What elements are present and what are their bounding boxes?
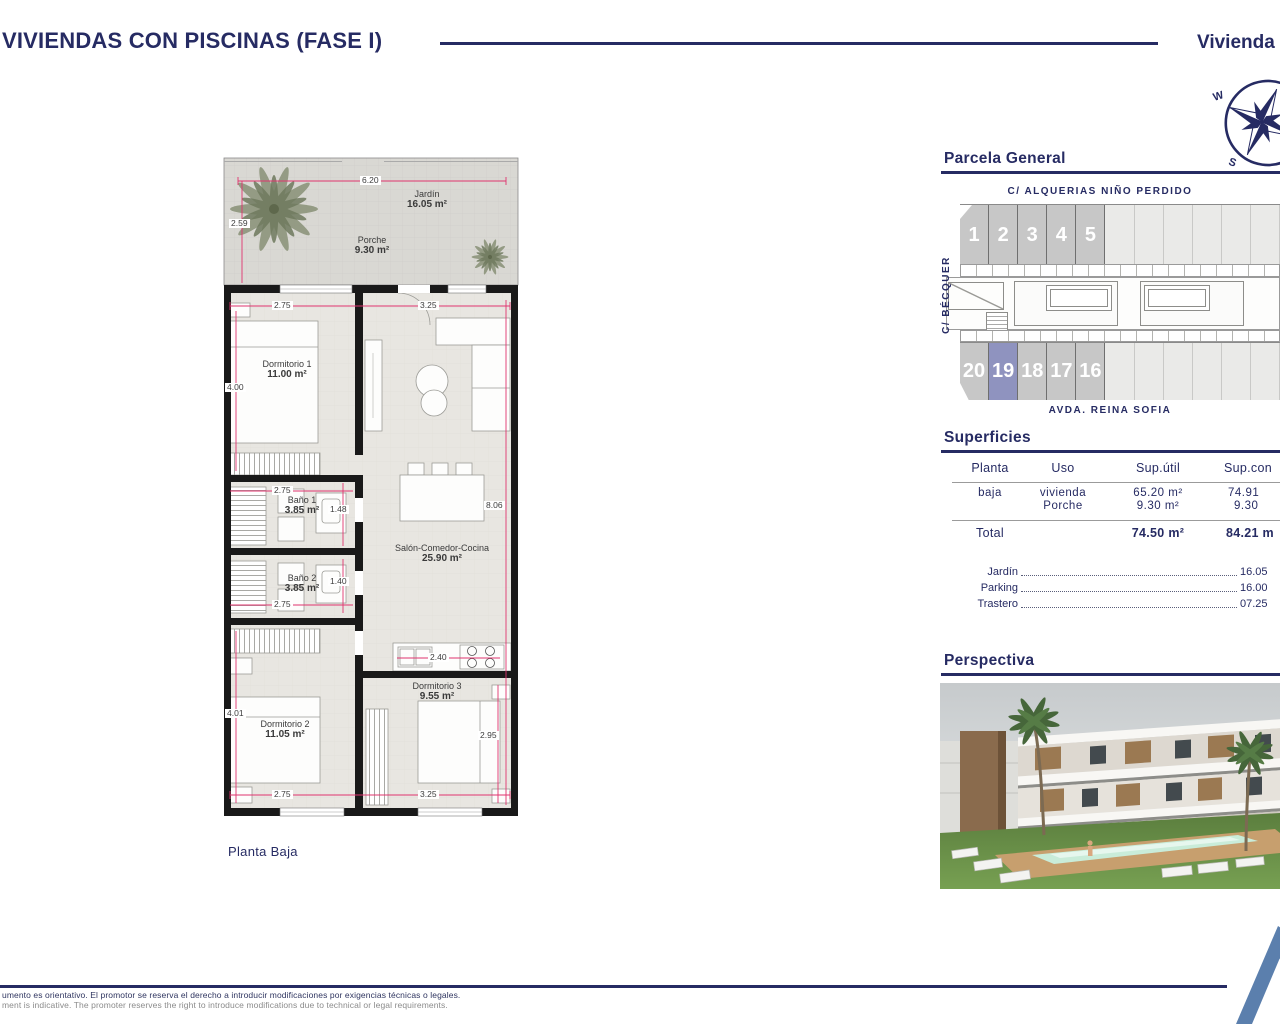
dotted-leader [1021,591,1237,592]
room-label-dormitorio3: Dormitorio 39.55 m² [372,681,502,703]
dim-terrace-height: 2.59 [229,219,250,228]
dim-terrace-width: 6.20 [360,176,381,185]
extras-row: Trastero 07.25 [940,594,1280,610]
section-title-parcela: Parcela General [944,150,1066,168]
perspective-rendering [940,683,1280,889]
unit-cell: 2 [989,205,1018,265]
dim-dorm1-width: 2.75 [272,301,293,310]
unit-cell: 20 [960,343,989,400]
table-cell: 9.30 [1234,500,1280,512]
unit-cell-empty [1135,343,1164,400]
table-cell: 9.30 m² [1118,500,1198,512]
unit-cell-empty [1105,343,1134,400]
dim-salon-height: 8.06 [484,501,505,510]
terrace-strip [960,264,1280,277]
table-header-sup-cons: Sup.con [1224,461,1280,475]
table-cell: baja [955,487,1025,499]
dim-bano2-width: 2.75 [272,600,293,609]
extras-label: Parking [940,582,1018,594]
unit-cell-empty [1251,343,1280,400]
room-label-dormitorio2: Dormitorio 211.05 m² [230,719,340,741]
unit-cell-empty [1193,205,1222,265]
section-title-superficies: Superficies [944,429,1031,447]
terrace-strip [960,330,1280,342]
unit-cell-empty [1135,205,1164,265]
extras-value: 16.05 [1240,566,1280,578]
disclaimer-en: ment is indicative. The promoter reserve… [2,1000,448,1010]
extras-row: Parking 16.00 [940,578,1280,594]
dim-bano1-height: 1.48 [328,505,349,514]
table-total-label: Total [955,526,1025,540]
unit-cell-highlighted: 19 [989,343,1018,400]
extras-value: 07.25 [1240,598,1280,610]
room-label-salon: Salón-Comedor-Cocina25.90 m² [372,543,512,565]
floor-label: Planta Baja [228,844,298,859]
table-header-uso: Uso [1028,461,1098,475]
unit-cell: 18 [1018,343,1047,400]
dim-salon-width: 3.25 [418,301,439,310]
room-label-jardin: Jardín16.05 m² [372,189,482,211]
unit-cell-empty [1251,205,1280,265]
street-label-top: C/ ALQUERIAS NIÑO PERDIDO [950,186,1250,197]
brand-logo [1228,924,1280,1024]
table-header-planta: Planta [955,461,1025,475]
unit-cell: 16 [1076,343,1105,400]
unit-cell: 1 [960,205,989,265]
section-rule [941,171,1280,174]
table-total-util: 74.50 m² [1118,526,1198,540]
street-label-left: C/ BÉCQUER [941,235,952,355]
site-plan-bottom-row: 20 19 18 17 16 [960,342,1280,400]
table-divider [952,482,1280,483]
street-label-bottom: AVDA. REINA SOFIA [980,405,1240,416]
unit-cell: 3 [1018,205,1047,265]
dim-bano2-height: 1.40 [328,577,349,586]
extras-list: Jardín 16.05 Parking 16.00 Trastero 07.2… [940,562,1280,610]
table-cell: 74.91 [1228,487,1280,499]
disclaimer-es: umento es orientativo. El promotor se re… [2,990,460,1000]
table-header-sup-util: Sup.útil [1118,461,1198,475]
unit-cell: 5 [1076,205,1105,265]
dim-dorm1-height: 4.00 [225,383,246,392]
floor-plan: Jardín16.05 m² Porche9.30 m² Dormitorio … [222,153,520,821]
extras-label: Trastero [940,598,1018,610]
extras-row: Jardín 16.05 [940,562,1280,578]
site-plan-top-row: 1 2 3 4 5 [960,204,1280,265]
unit-cell-empty [1222,343,1251,400]
compass-rose-icon: W S [1205,72,1280,172]
unit-cell-empty [1164,205,1193,265]
pool-outline [1144,285,1210,311]
footer-divider [0,985,1227,988]
unit-cell: 4 [1047,205,1076,265]
header-divider [440,42,1158,45]
section-rule [941,673,1280,676]
dim-bano1-width: 2.75 [272,486,293,495]
dim-dorm2-width: 2.75 [272,790,293,799]
table-cell: 65.20 m² [1118,487,1198,499]
dim-dorm3-height: 2.95 [478,731,499,740]
unit-cell-empty [1222,205,1251,265]
page-title: VIVIENDAS CON PISCINAS (FASE I) [2,28,382,54]
table-divider [952,520,1280,521]
section-rule [941,450,1280,453]
table-total-cons: 84.21 m [1226,526,1280,540]
room-label-dormitorio1: Dormitorio 111.00 m² [232,359,342,381]
dim-dorm2-height: 4.01 [225,709,246,718]
brochure-page: { "colors": { "navy": "#262b63", "dim_pi… [0,0,1280,1024]
extras-label: Jardín [940,566,1018,578]
dim-dorm3-width: 3.25 [418,790,439,799]
unit-cell-empty [1164,343,1193,400]
unit-cell: 17 [1047,343,1076,400]
unit-cell-empty [1193,343,1222,400]
unit-cell-empty [1105,205,1134,265]
site-structure [948,282,1004,310]
pool-outline [1046,285,1112,311]
extras-value: 16.00 [1240,582,1280,594]
section-title-perspectiva: Perspectiva [944,652,1034,670]
room-label-porche: Porche9.30 m² [317,235,427,257]
page-title-right: Vivienda [1197,32,1275,54]
dim-kitchen-width: 2.40 [428,653,449,662]
dotted-leader [1021,607,1237,608]
compass-west-label: W [1212,89,1226,104]
table-cell: Porche [1028,500,1098,512]
compass-south-label: S [1227,156,1238,170]
dotted-leader [1021,575,1237,576]
table-cell: vivienda [1028,487,1098,499]
